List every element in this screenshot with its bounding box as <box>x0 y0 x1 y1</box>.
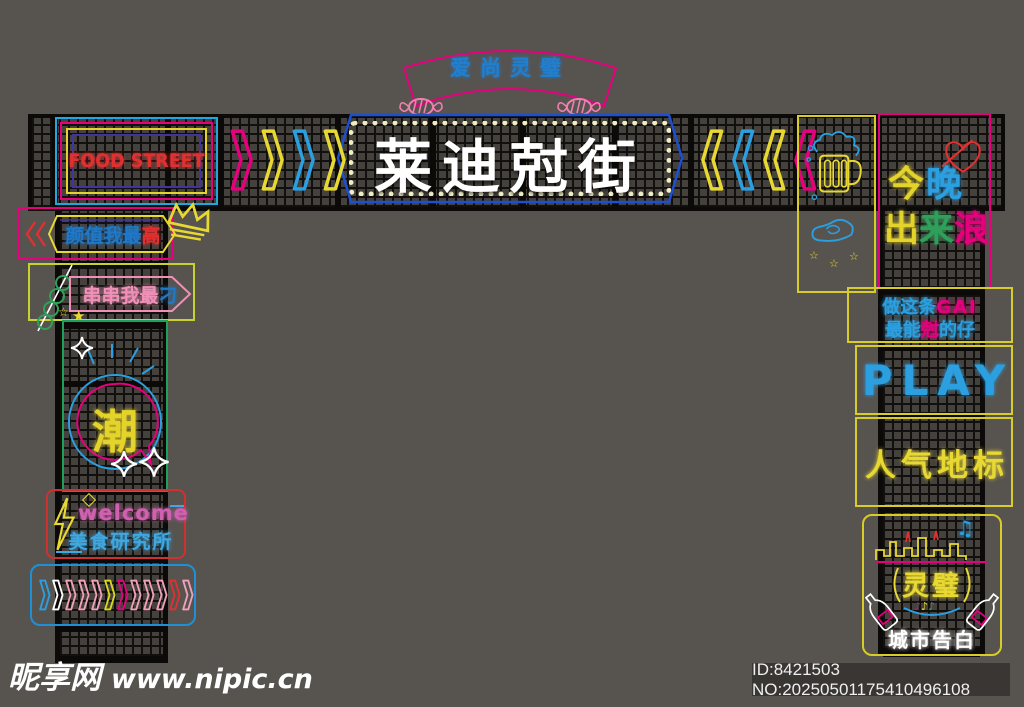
beauty-sign: 颜值我最高 <box>18 203 204 265</box>
chevron-right-icon <box>168 572 181 618</box>
beer-sign: ☆ ☆ ☆ <box>797 115 876 293</box>
chevron-right-icon <box>290 128 316 192</box>
landmark-label: 人气地标 <box>865 440 1009 485</box>
gai-line1-main: 做这条 <box>882 297 936 318</box>
chevron-right-icon <box>142 572 155 618</box>
chevron-right-icon <box>129 572 142 618</box>
gai-line2-a: 最能 <box>885 320 921 341</box>
skewer-sign: 串串我最刁 ☆ ★ <box>28 261 198 325</box>
chevron-left-icon <box>700 128 726 192</box>
banner-title: 爱尚灵璧 <box>390 52 630 82</box>
chevron-right-icon <box>321 128 347 192</box>
main-sign-title: 莱迪尅街 <box>335 120 685 204</box>
welcome-line1: welcome <box>78 501 178 525</box>
landmark-sign: 人气地标 <box>855 417 1013 507</box>
watermark: 昵享网 www.nipic.cn <box>8 652 313 697</box>
trend-sign: 潮 <box>62 320 168 492</box>
chevron-right-icon <box>64 572 77 618</box>
star-outline-icon: ☆ <box>849 250 859 263</box>
play-sign: PLAY <box>855 345 1013 415</box>
food-street-sign: FOOD STREET <box>55 117 218 205</box>
chevron-left-icon <box>762 128 788 192</box>
sparkle-icon <box>110 450 138 478</box>
panel-joint <box>883 507 980 513</box>
night-char-4: 来 <box>919 210 954 250</box>
food-street-label: FOOD STREET <box>62 117 212 205</box>
panel-joint <box>688 118 694 207</box>
beer-mug-icon <box>804 127 870 207</box>
play-label: PLAY <box>862 356 1014 405</box>
stock-id-bar: ID:8421503 NO:20250501175410496108 <box>752 663 1010 696</box>
gai-line2-b: 尅 <box>921 320 939 341</box>
panel-joint <box>218 118 224 207</box>
welcome-sign: welcome 美食研究所 <box>46 489 186 559</box>
panel-joint <box>60 626 163 632</box>
gai-sign: 做这条GAI 最能尅的仔 <box>847 287 1013 343</box>
beauty-text-accent: 高 <box>142 225 161 247</box>
arrow-row-sign <box>30 564 196 626</box>
sparkle-icon <box>138 446 170 478</box>
neon-archway-design: 爱尚灵璧 莱迪尅街 FOOD STREET <box>0 0 1024 707</box>
gai-line2: 最能尅的仔 <box>849 316 1011 342</box>
sparkle-icon <box>70 336 94 360</box>
night-out-sign: 今晚 出来浪 <box>878 113 991 289</box>
main-sign: 莱迪尅街 <box>335 112 685 205</box>
watermark-url: www.nipic.cn <box>111 664 313 695</box>
stock-id-text: ID:8421503 NO:20250501175410496108 <box>752 660 1010 700</box>
welcome-line2: 美食研究所 <box>62 527 180 554</box>
double-chevron-left-icon <box>24 220 48 248</box>
chevron-right-icon <box>51 572 64 618</box>
chevron-right-icon <box>181 572 194 618</box>
night-sign-row1: 今晚 <box>888 155 964 207</box>
star-outline-icon: ☆ <box>58 305 69 319</box>
chevron-right-icon <box>90 572 103 618</box>
sneaker-icon <box>809 213 857 247</box>
night-char-1: 今 <box>888 164 926 205</box>
city-badge-label: 灵璧 <box>864 564 1000 603</box>
chevron-right-icon <box>38 572 51 618</box>
note-icon: ♪ <box>928 600 935 613</box>
gai-line2-c: 的仔 <box>939 320 975 341</box>
gai-line1-accent: GAI <box>936 297 977 318</box>
skewer-sign-text: 串串我最刁 <box>74 281 186 308</box>
skewer-text-main: 串串我最 <box>82 285 158 307</box>
night-char-2: 晚 <box>926 164 964 205</box>
night-char-5: 浪 <box>954 210 989 250</box>
note-icon: ♪ <box>921 600 928 613</box>
star-outline-icon: ☆ <box>809 249 819 262</box>
chevron-right-icon <box>77 572 90 618</box>
chevron-right-icon <box>155 572 168 618</box>
top-bar-arrows-left <box>228 128 347 192</box>
accent-dash <box>56 551 82 553</box>
accent-dash <box>170 505 184 507</box>
beauty-text-main: 颜值我最 <box>65 225 141 247</box>
small-notes-icon: ♪♪♪ <box>914 600 935 613</box>
skewer-text-accent: 刁 <box>159 285 178 307</box>
chevron-right-icon <box>259 128 285 192</box>
city-badge-sign: ♫ 灵璧 ♪♪♪ 城市告白 <box>862 514 1002 656</box>
chevron-left-icon <box>731 128 757 192</box>
chevron-right-icon <box>116 572 129 618</box>
beauty-sign-text: 颜值我最高 <box>54 221 172 248</box>
star-outline-icon: ☆ <box>829 257 839 270</box>
night-char-3: 出 <box>884 210 919 250</box>
chevron-right-icon <box>103 572 116 618</box>
city-caption: 城市告白 <box>864 624 1000 653</box>
watermark-brand: 昵享网 <box>8 652 101 697</box>
note-icon: ♪ <box>914 600 921 613</box>
chevron-right-icon <box>228 128 254 192</box>
night-sign-row2: 出来浪 <box>884 201 989 252</box>
